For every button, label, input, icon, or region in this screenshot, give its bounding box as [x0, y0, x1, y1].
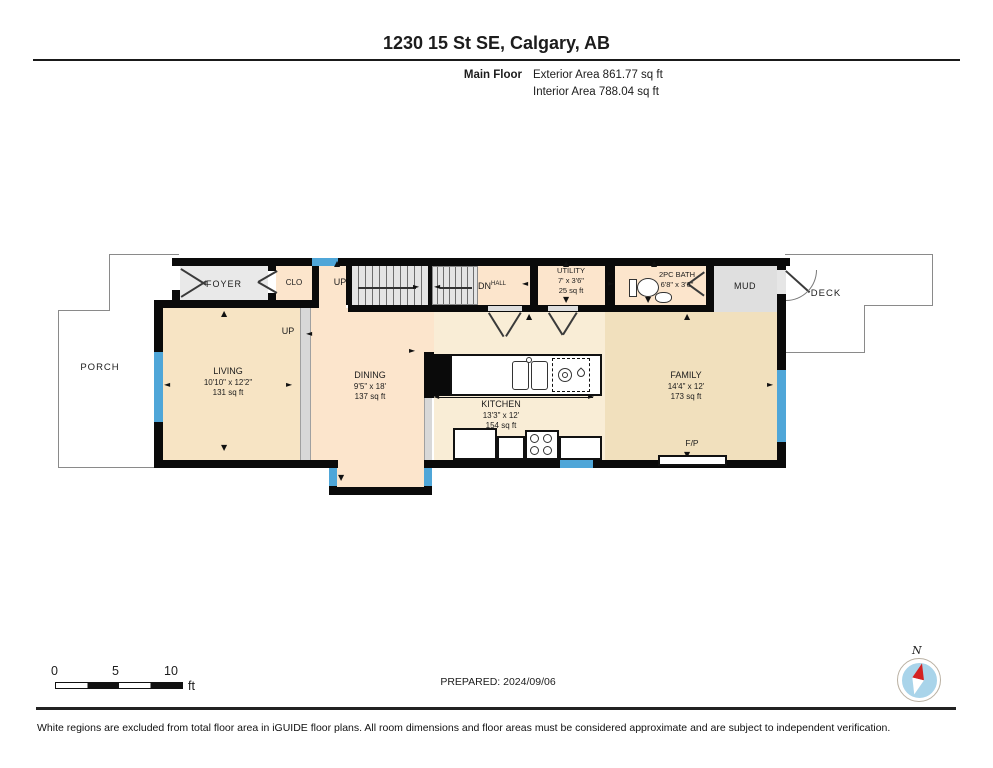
- deck-label: DECK: [811, 288, 841, 300]
- wall-bottom-right: [424, 460, 785, 468]
- porch-outline: [58, 467, 155, 468]
- wall-right-top: [777, 258, 786, 270]
- living-dim: 10'10" x 12'2": [204, 378, 252, 388]
- hall-text: HALL: [491, 281, 506, 287]
- footer-rule: [36, 707, 956, 710]
- direction-arrow-right: ►: [767, 381, 773, 389]
- dishwasher-dial-center: [562, 372, 568, 378]
- dining-bump-window-left: [329, 468, 337, 486]
- deck-outline: [864, 305, 865, 353]
- needle-south: [908, 677, 924, 695]
- foyer-label: FOYER: [206, 279, 242, 291]
- header-rule: [33, 59, 960, 61]
- family-area: 173 sq ft: [668, 392, 705, 402]
- deck-outline: [785, 254, 933, 255]
- direction-arrow-up: ▲: [526, 313, 532, 321]
- scale-unit: ft: [188, 679, 195, 693]
- stairs-down-arrow-head: ◄: [434, 283, 440, 291]
- bath-sink: [655, 292, 672, 303]
- fireplace: [658, 455, 727, 466]
- deck-outline: [785, 352, 865, 353]
- kitchen-counter: [559, 436, 602, 460]
- bath-dim: 6'8" x 3'6": [659, 280, 695, 290]
- utility-name: UTILITY: [557, 266, 585, 276]
- deck-outline: [932, 254, 933, 306]
- wall-right-bottom: [777, 442, 786, 468]
- direction-arrow-left: ◄: [306, 330, 312, 338]
- scale-tick-0: 0: [51, 664, 58, 678]
- direction-arrow-down: ▼: [645, 296, 651, 304]
- porch-label: PORCH: [80, 362, 119, 374]
- direction-arrow-down: ▼: [221, 444, 227, 452]
- stairs-down-arrow-line: [440, 287, 472, 289]
- dining-open: [424, 308, 434, 352]
- dining-bump-floor: [337, 460, 424, 487]
- wall-bath-right: [706, 258, 714, 305]
- kitchen-counter: [497, 436, 525, 460]
- dining-name: DINING: [354, 370, 386, 382]
- stairs-up-arrow-line: [358, 287, 416, 289]
- compass-icon: [897, 658, 941, 702]
- stove-burner: [530, 446, 539, 455]
- dining-label: DINING 9'5" x 18' 137 sq ft: [354, 370, 386, 402]
- closet-label: CLO: [286, 278, 302, 288]
- porch-outline: [58, 310, 59, 468]
- bath-label: 2PC BATH 6'8" x 3'6": [659, 270, 695, 290]
- stairs-up-arrow-head: ►: [413, 283, 419, 291]
- stove: [525, 430, 559, 460]
- wall-closet-right: [312, 266, 319, 300]
- utility-door-threshold: [548, 306, 578, 311]
- stairs-up-label: UP: [334, 277, 347, 289]
- scale-bar: [55, 682, 183, 689]
- hall-door-threshold: [488, 306, 522, 311]
- porch-outline: [58, 310, 110, 311]
- direction-arrow-down: ▼: [338, 474, 344, 482]
- family-window: [777, 370, 786, 442]
- living-label: LIVING 10'10" x 12'2" 131 sq ft: [204, 366, 252, 398]
- dining-bump-window-right: [424, 468, 432, 486]
- toilet-tank: [629, 279, 637, 297]
- mud-deck-threshold: [777, 270, 786, 294]
- floor-label: Main Floor: [392, 69, 522, 81]
- wall-stair-divider: [428, 266, 432, 305]
- wall-foyer-closet-bottom: [268, 293, 276, 300]
- direction-arrow-right: ►: [608, 280, 614, 288]
- dn-text: DN: [478, 281, 491, 291]
- stove-burner: [530, 434, 539, 443]
- wall-bump-bottom: [329, 487, 432, 495]
- porch-outline: [109, 254, 110, 310]
- kitchen-dimension-line: [437, 397, 593, 398]
- direction-arrow-up: ▲: [334, 260, 340, 268]
- kitchen-window: [560, 460, 593, 468]
- kitchen-dim: 13'3" x 12': [481, 411, 521, 421]
- direction-arrow-up: ▲: [221, 310, 227, 318]
- interior-area: Interior Area 788.04 sq ft: [533, 86, 659, 98]
- kitchen-faucet: [526, 357, 532, 363]
- kitchen-counter: [453, 428, 497, 460]
- mud-label: MUD: [734, 281, 756, 293]
- wall-island-end: [430, 354, 452, 396]
- exterior-area: Exterior Area 861.77 sq ft: [533, 69, 663, 81]
- kitchen-area: 154 sq ft: [481, 421, 521, 431]
- direction-arrow-up: ▲: [684, 313, 690, 321]
- kitchen-name: KITCHEN: [481, 399, 521, 411]
- disclaimer-text: White regions are excluded from total fl…: [37, 722, 967, 734]
- page-title: 1230 15 St SE, Calgary, AB: [0, 33, 993, 54]
- porch-outline: [109, 254, 179, 255]
- floor-plan-page: 1230 15 St SE, Calgary, AB Main Floor Ex…: [0, 0, 993, 768]
- corridor-floor: [319, 266, 346, 312]
- direction-arrow-right: ►: [409, 347, 415, 355]
- family-name: FAMILY: [668, 370, 705, 382]
- living-window: [154, 352, 163, 422]
- stove-burner: [543, 446, 552, 455]
- kitchen-railing: [424, 398, 432, 460]
- utility-dim: 7' x 3'6": [557, 276, 585, 286]
- utility-label: UTILITY 7' x 3'6" 25 sq ft: [557, 266, 585, 296]
- wall-utility-left: [530, 258, 538, 312]
- kitchen-label: KITCHEN 13'3" x 12' 154 sq ft: [481, 399, 521, 431]
- wall-right-mid: [777, 294, 786, 370]
- dining-dim: 9'5" x 18': [354, 382, 386, 392]
- living-area: 131 sq ft: [204, 388, 252, 398]
- bath-name: 2PC BATH: [659, 270, 695, 280]
- stove-burner: [543, 434, 552, 443]
- kitchen-sink-basin: [531, 361, 548, 390]
- direction-arrow-up: ▲: [651, 260, 657, 268]
- wall-bottom-left: [154, 460, 338, 468]
- direction-arrow-left: ◄: [522, 280, 528, 288]
- kitchen-dimension-arrow-left: ◄: [433, 393, 439, 401]
- direction-arrow-left: ◄: [164, 381, 170, 389]
- stairs-down-label: DNHALL: [478, 281, 506, 293]
- scale-tick-5: 5: [112, 664, 119, 678]
- wall-bath-bottom: [605, 305, 714, 312]
- family-dim: 14'4" x 12': [668, 382, 705, 392]
- direction-arrow-down: ▼: [563, 296, 569, 304]
- wall-stairs-left: [346, 266, 352, 305]
- kitchen-sink-basin: [512, 361, 529, 390]
- family-label: FAMILY 14'4" x 12' 173 sq ft: [668, 370, 705, 402]
- wall-top: [172, 258, 790, 266]
- prepared-date: PREPARED: 2024/09/06: [398, 676, 598, 688]
- wall-under-foyer: [172, 300, 319, 308]
- scale-tick-10: 10: [164, 664, 178, 678]
- deck-outline: [864, 305, 933, 306]
- direction-arrow-right: ►: [286, 381, 292, 389]
- compass-north-label: N: [912, 644, 922, 657]
- stairs-up-label-2: UP: [282, 326, 295, 338]
- fireplace-label: F/P: [685, 438, 698, 449]
- dining-area: 137 sq ft: [354, 392, 386, 402]
- utility-area: 25 sq ft: [557, 286, 585, 296]
- living-name: LIVING: [204, 366, 252, 378]
